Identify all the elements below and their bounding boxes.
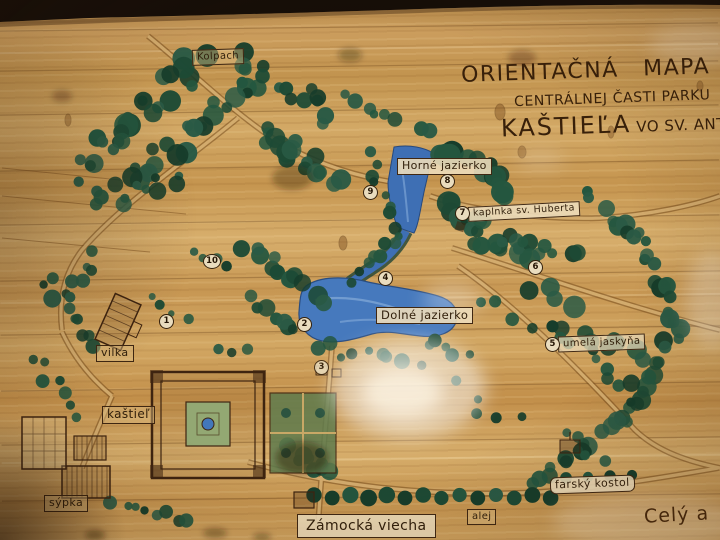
label-kastiel: kaštieľ: [102, 406, 155, 424]
label-dolne-jazierko: Dolné jazierko: [376, 307, 473, 324]
marker-3: 3: [314, 360, 329, 375]
title-line3-small: VO SV. ANTONE: [636, 114, 720, 136]
marker-7: 7: [455, 206, 470, 221]
label-vilka: vilka: [96, 345, 134, 362]
label-zamocka-viecha: Zámocká viecha: [297, 514, 436, 538]
label-kolpach: Kolpach: [192, 48, 245, 65]
label-alej: alej: [467, 509, 496, 525]
map-board: ORIENTAČNÁ MAPA CENTRÁLNEJ ČASTI PARKU K…: [0, 0, 720, 540]
marker-1: 1: [159, 314, 174, 329]
walled-garden: [22, 417, 66, 469]
granary-building: [62, 436, 110, 498]
label-umela-jaskyna: umelá jaskyňa: [558, 333, 646, 352]
title-line3-big: KAŠTIEĽA: [500, 110, 631, 143]
label-horne-jazierko: Horné jazierko: [397, 158, 492, 175]
title-line2: CENTRÁLNEJ ČASTI PARKU: [514, 86, 720, 110]
marker-2: 2: [297, 317, 312, 332]
tavern-building: [294, 492, 314, 508]
marker-10: 10: [203, 254, 221, 269]
map-title: ORIENTAČNÁ MAPA CENTRÁLNEJ ČASTI PARKU K…: [461, 53, 720, 144]
marker-4: 4: [378, 271, 393, 286]
marker-9: 9: [363, 185, 378, 200]
label-cely: Celý a: [643, 502, 709, 527]
marker-6: 6: [528, 260, 543, 275]
manor-kastiel: [150, 370, 266, 478]
marker-8: 8: [440, 174, 455, 189]
label-sypka: sýpka: [44, 495, 88, 512]
label-farsky-kostol: farský kostol: [550, 475, 635, 495]
marker-5: 5: [545, 337, 560, 352]
